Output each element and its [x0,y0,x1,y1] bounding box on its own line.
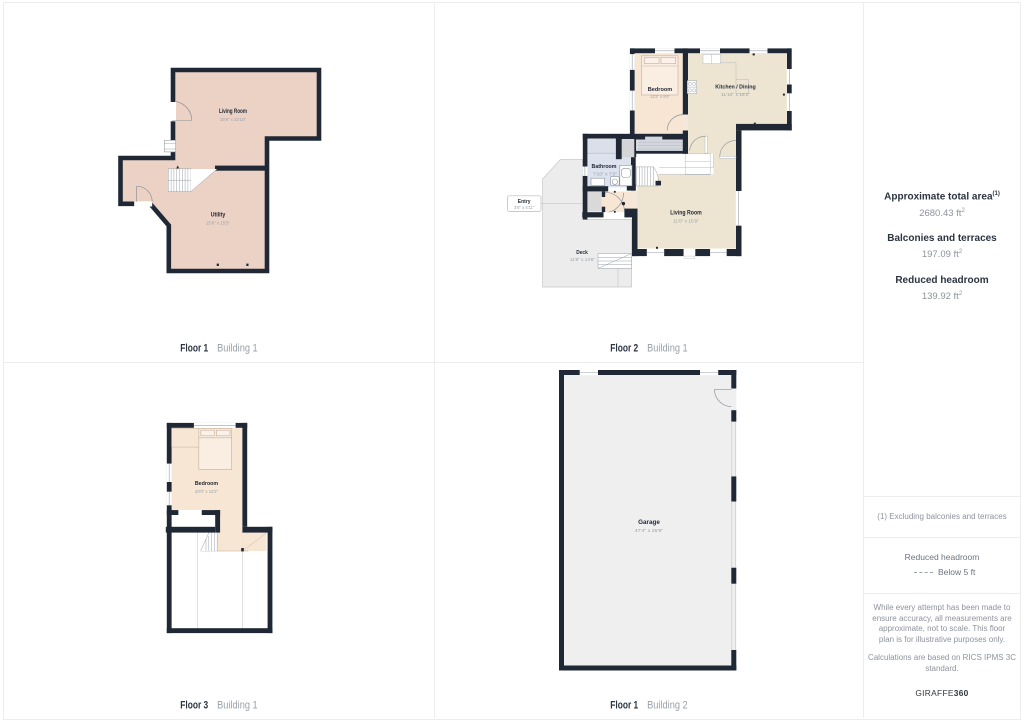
svg-text:Bathroom: Bathroom [592,164,617,170]
svg-text:Living Room: Living Room [670,210,702,217]
svg-text:15'6" x 15'5": 15'6" x 15'5" [206,221,230,227]
svg-text:Bedroom: Bedroom [648,87,673,93]
svg-text:Floor 3: Floor 3 [180,699,208,711]
svg-text:7'10" x 7'3": 7'10" x 7'3" [593,171,618,176]
svg-text:11'9" x 14'6": 11'9" x 14'6" [570,257,595,262]
svg-text:15'9" x 22'10": 15'9" x 22'10" [220,117,246,123]
svg-text:Building 1: Building 1 [217,699,258,711]
svg-text:Kitchen / Dining: Kitchen / Dining [715,85,755,91]
svg-text:Deck: Deck [576,250,588,256]
svg-text:3'5" x 4'11": 3'5" x 4'11" [514,205,535,210]
svg-text:47'4" x 25'9": 47'4" x 25'9" [635,528,664,534]
svg-text:Floor 1: Floor 1 [610,699,638,711]
svg-text:Floor 2: Floor 2 [610,342,638,354]
svg-text:Floor 1: Floor 1 [180,342,208,354]
svg-text:11'10" x 16'2": 11'10" x 16'2" [721,92,750,97]
svg-text:Building 2: Building 2 [647,699,688,711]
svg-text:13'3" x 9'9": 13'3" x 9'9" [650,94,670,99]
svg-text:Entry: Entry [518,199,531,205]
svg-text:Building 1: Building 1 [217,342,258,354]
svg-text:Utility: Utility [211,212,226,219]
svg-text:11'0" x 15'9": 11'0" x 15'9" [673,218,699,224]
svg-text:Building 1: Building 1 [647,342,688,354]
svg-text:Living Room: Living Room [219,108,247,115]
svg-text:Garage: Garage [638,519,660,526]
svg-text:20'0" x 12'2": 20'0" x 12'2" [195,489,218,494]
svg-text:Bedroom: Bedroom [195,481,218,487]
